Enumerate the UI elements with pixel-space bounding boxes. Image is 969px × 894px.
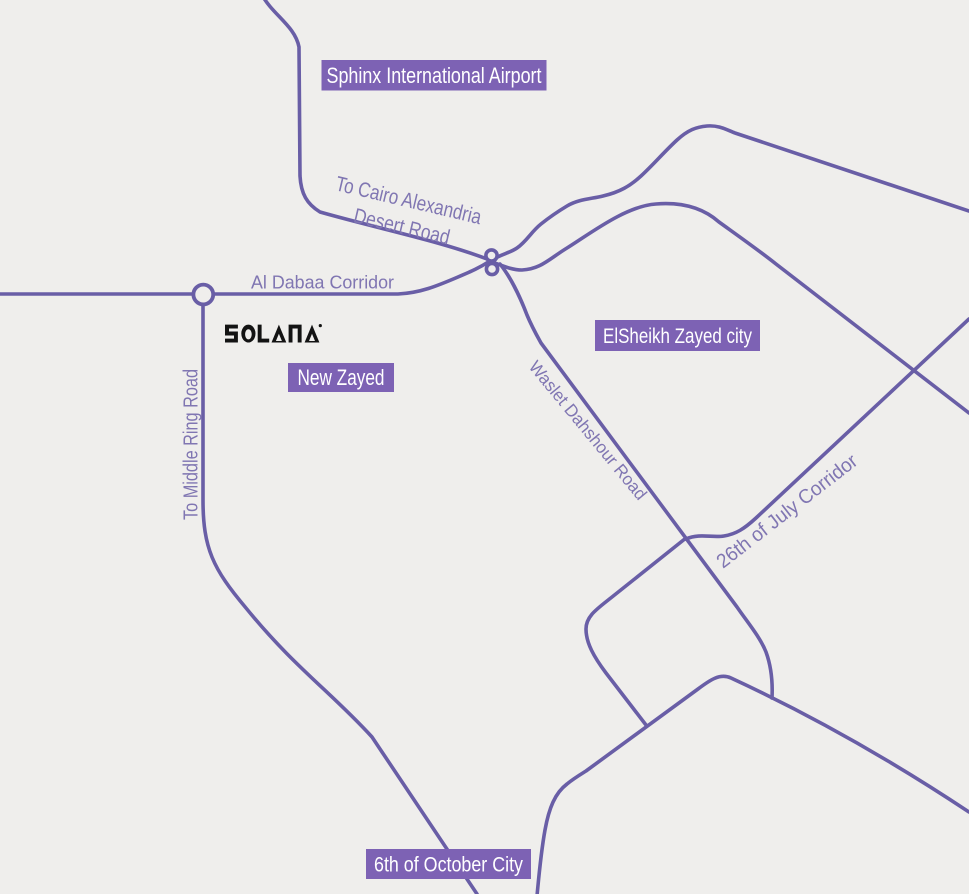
svg-text:Sphinx International Airport: Sphinx International Airport [327,63,542,88]
svg-text:ElSheikh Zayed city: ElSheikh Zayed city [603,324,752,348]
svg-text:6th of October City: 6th of October City [374,853,523,877]
svg-text:To Middle Ring Road: To Middle Ring Road [181,369,203,520]
svg-text:Al Dabaa Corridor: Al Dabaa Corridor [251,272,394,293]
svg-text:New Zayed: New Zayed [298,365,385,390]
